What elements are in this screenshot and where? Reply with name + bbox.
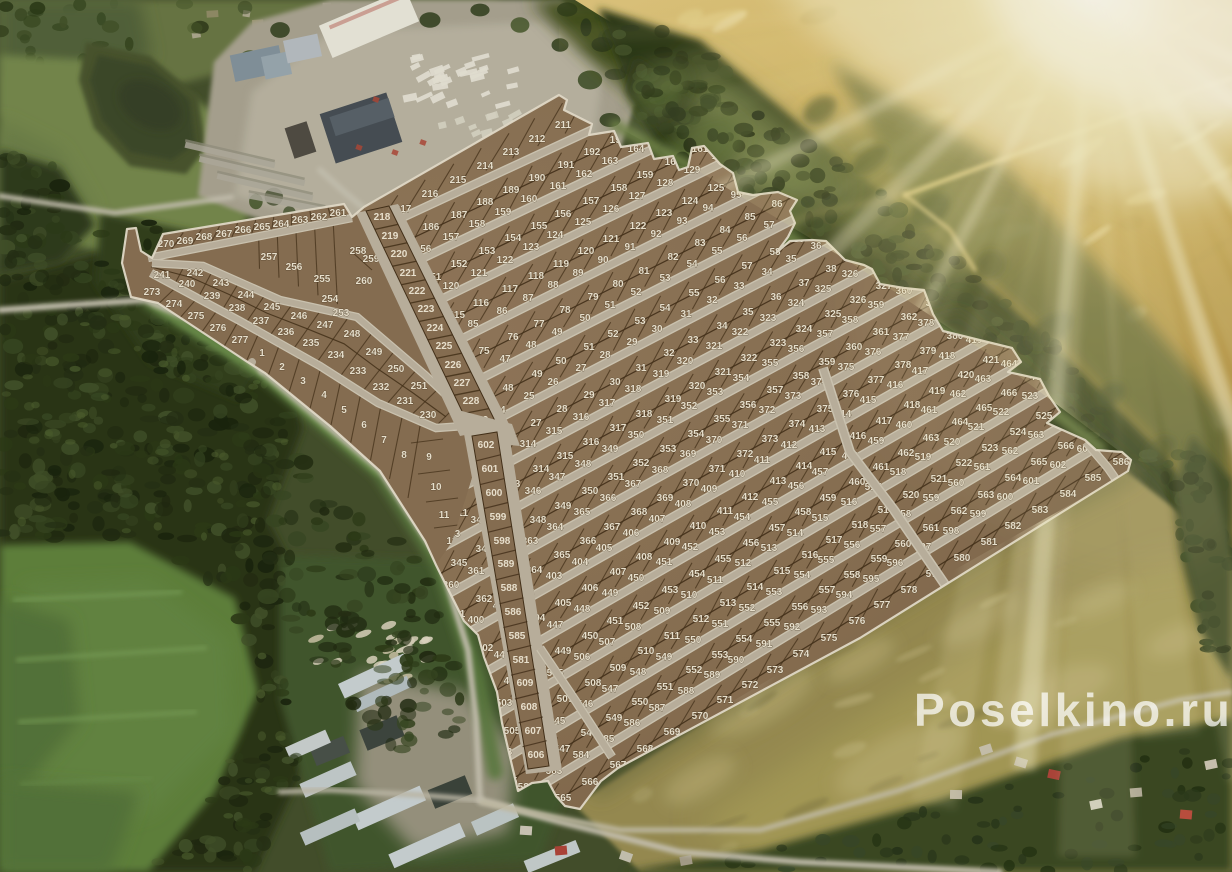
svg-text:Poselkino.ru: Poselkino.ru bbox=[914, 684, 1232, 736]
